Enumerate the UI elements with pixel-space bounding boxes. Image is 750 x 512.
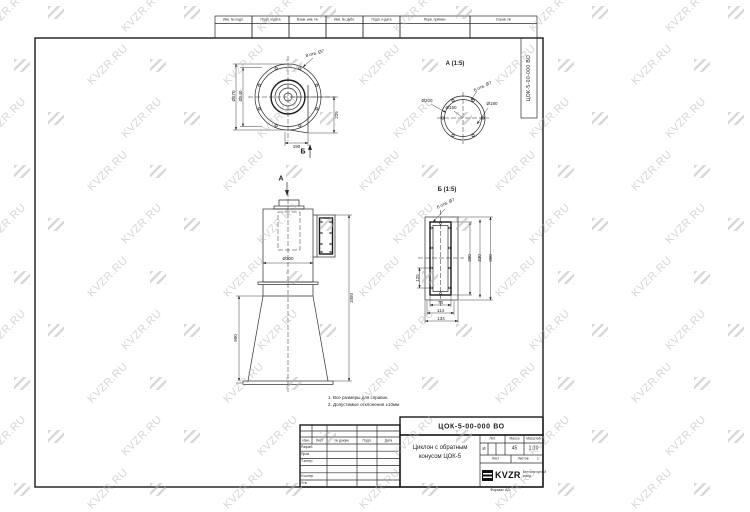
dim-total-height: 1050 bbox=[350, 293, 355, 303]
sheets-label: Листов bbox=[517, 457, 528, 460]
dim-cone-height: 900 bbox=[234, 334, 239, 342]
strip-cell-label: Инв. № дубл. bbox=[334, 18, 355, 21]
view-direction-label-a: А bbox=[278, 176, 283, 183]
dim-bottom: 190 bbox=[293, 145, 301, 150]
kvzr-logo-text: KVZR bbox=[495, 470, 521, 480]
row-utv: Утв. bbox=[301, 482, 307, 485]
col-list: Лист bbox=[316, 439, 323, 442]
part-name: Циклон с обратным конусом ЦОК-5 bbox=[401, 444, 479, 462]
col-izm: Изм. bbox=[302, 439, 309, 442]
side-stamp-doc-number: ЦОК-5-00-000 ВО bbox=[526, 55, 532, 102]
front-view bbox=[236, 182, 352, 392]
strip-cell-label: Подп. и дата bbox=[372, 18, 392, 21]
dim-flange-d180: Ø180 bbox=[486, 102, 497, 107]
dim-b-inner-width: 70 bbox=[438, 301, 443, 306]
strip-cell-label: Подп. и дата bbox=[261, 18, 281, 21]
col-data: Дата bbox=[385, 439, 393, 442]
dim-b-left: 125 bbox=[416, 274, 421, 282]
dim-b-outer-height: 350 bbox=[489, 254, 494, 262]
view-a bbox=[431, 91, 489, 144]
dim-body-diameter: Ø300 bbox=[282, 257, 293, 262]
note-line-1: 1. Все размеры для справок. bbox=[328, 396, 388, 401]
dim-right: 225 bbox=[335, 111, 340, 119]
dim-b-mid-width: 114 bbox=[437, 309, 444, 314]
format-label: Формат А3 bbox=[490, 489, 509, 493]
scale-value: 1:10 bbox=[529, 447, 539, 452]
dim-inner-diameter: Ø540 bbox=[239, 90, 244, 101]
dim-b-mid-height: 330 bbox=[478, 254, 483, 262]
mass-label: Масса bbox=[509, 437, 519, 440]
sheets-value: 1 bbox=[537, 457, 539, 460]
note-line-2: 2. Допустимые отклонения ±10мм bbox=[328, 403, 399, 408]
top-view bbox=[233, 56, 338, 158]
row-tkontr: Т.контр. bbox=[301, 460, 313, 463]
mass-value: 45 bbox=[512, 447, 518, 452]
title-block-doc-number: ЦОК-5-00-000 ВО bbox=[438, 423, 504, 430]
dim-b-outer-width: 134 bbox=[437, 317, 445, 322]
row-nkontr: Н.контр. bbox=[301, 475, 314, 478]
col-podp: Подп. bbox=[362, 439, 371, 442]
kvzr-logo-subtext: Вентиляторный завод bbox=[523, 471, 539, 479]
company-logo: KVZR Вентиляторный завод bbox=[482, 465, 542, 485]
strip-cell-label: Перв. примен. bbox=[424, 18, 447, 21]
scale-label: Масштаб bbox=[526, 437, 541, 440]
lit-label: Лит. bbox=[489, 437, 495, 440]
view-b bbox=[417, 209, 493, 323]
view-b-title: Б (1:5) bbox=[438, 187, 457, 193]
view-a-title: А (1:5) bbox=[446, 61, 465, 67]
strip-cell-label: Инв. № подл. bbox=[223, 18, 244, 21]
kvzr-logo-icon bbox=[482, 470, 493, 481]
dim-outer-diameter: Ø570 bbox=[232, 90, 237, 101]
dim-flange-d200: Ø200 bbox=[421, 99, 432, 104]
dim-flange-d150: Ø150 bbox=[445, 106, 456, 111]
sheet-label: Лист bbox=[492, 457, 499, 460]
drawing-linework bbox=[0, 0, 750, 500]
row-razrab: Разраб. bbox=[301, 446, 313, 449]
strip-cell-label: Справ. № bbox=[496, 18, 511, 21]
screenshot-root: { "watermark": { "text": "KVZR.RU" }, "t… bbox=[0, 0, 750, 500]
lit-value: И bbox=[482, 447, 485, 452]
col-docum: № докум. bbox=[335, 439, 350, 442]
dim-b-inner-height: 300 bbox=[468, 254, 473, 262]
section-label-b: Б bbox=[300, 149, 305, 156]
strip-cell-label: Взам. инв. № bbox=[297, 18, 318, 21]
row-prov: Пров. bbox=[301, 453, 310, 456]
sheet-frame bbox=[35, 38, 543, 487]
